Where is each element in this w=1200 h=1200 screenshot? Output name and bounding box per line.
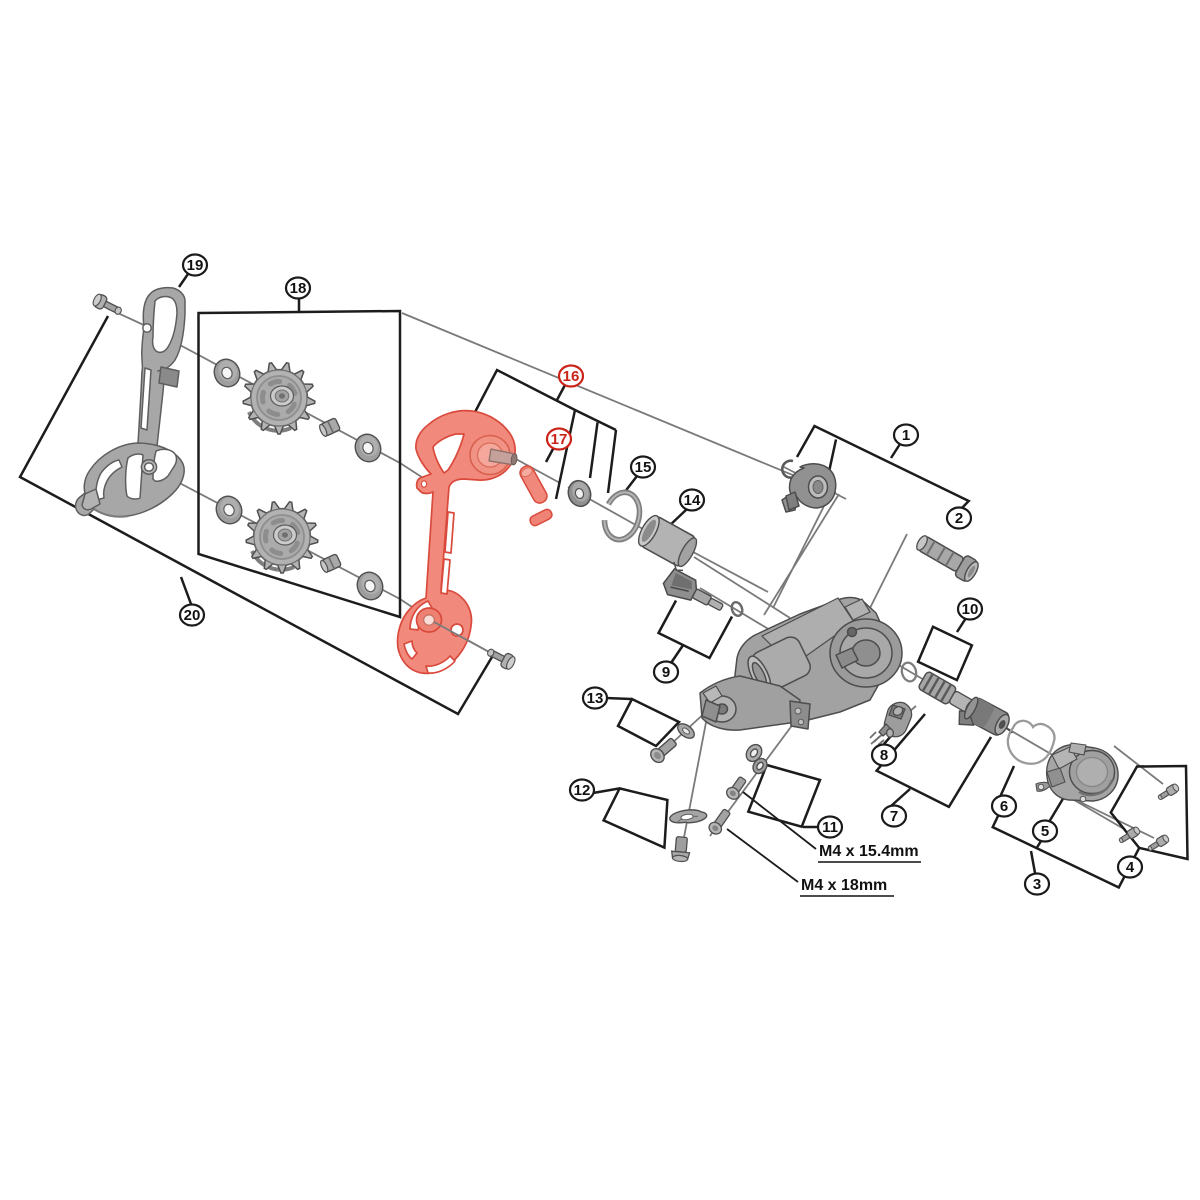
svg-text:11: 11 bbox=[822, 819, 838, 836]
svg-text:17: 17 bbox=[551, 431, 568, 448]
svg-text:15: 15 bbox=[635, 459, 652, 476]
svg-text:13: 13 bbox=[587, 690, 604, 707]
svg-text:19: 19 bbox=[187, 257, 204, 274]
svg-text:4: 4 bbox=[1126, 859, 1135, 876]
svg-text:14: 14 bbox=[684, 492, 701, 509]
svg-text:18: 18 bbox=[290, 280, 307, 297]
svg-text:3: 3 bbox=[1033, 876, 1041, 893]
svg-text:16: 16 bbox=[563, 368, 580, 385]
svg-text:7: 7 bbox=[890, 808, 898, 825]
svg-text:M4 x 15.4mm: M4 x 15.4mm bbox=[819, 843, 919, 860]
svg-text:5: 5 bbox=[1041, 823, 1049, 840]
svg-text:20: 20 bbox=[184, 607, 201, 624]
svg-text:8: 8 bbox=[880, 747, 888, 764]
svg-text:12: 12 bbox=[574, 782, 591, 799]
svg-text:9: 9 bbox=[662, 664, 670, 681]
svg-text:6: 6 bbox=[1000, 798, 1008, 815]
svg-text:10: 10 bbox=[962, 601, 979, 618]
svg-text:M4 x 18mm: M4 x 18mm bbox=[801, 877, 887, 894]
svg-text:2: 2 bbox=[955, 510, 963, 527]
svg-text:1: 1 bbox=[902, 427, 910, 444]
